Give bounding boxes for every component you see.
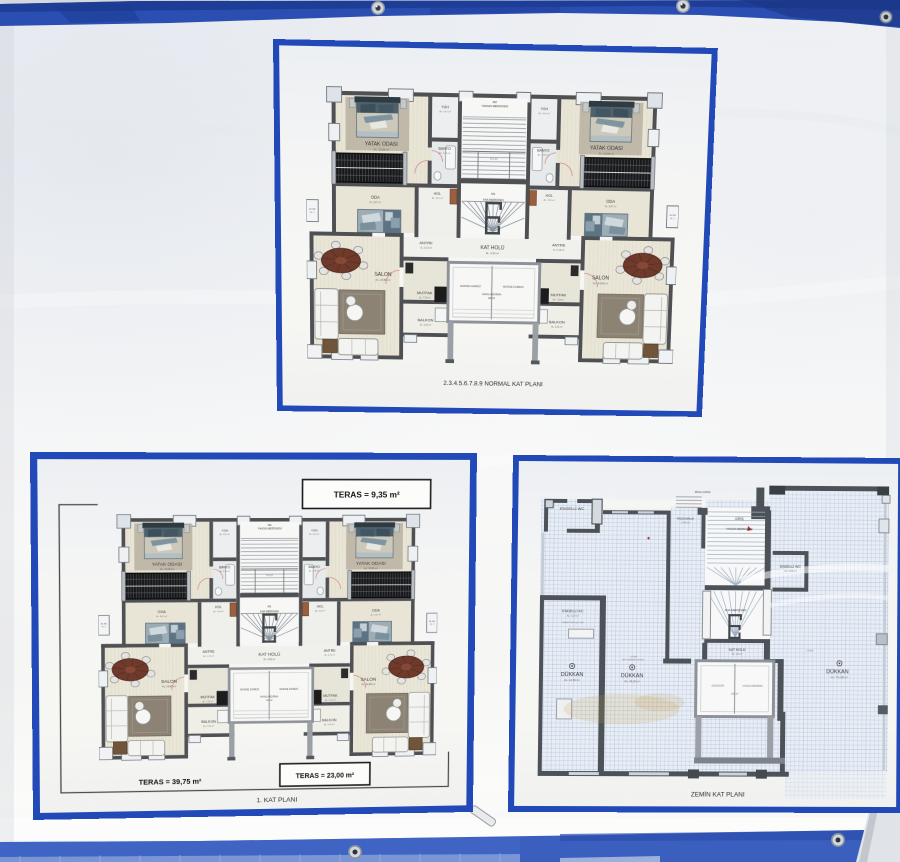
- svg-text:AL: 16 m²: AL: 16 m²: [732, 653, 743, 656]
- svg-text:AL: 4,40 m²: AL: 4,40 m²: [784, 570, 797, 573]
- svg-text:GİRİŞ: GİRİŞ: [735, 516, 744, 521]
- svg-text:AL: 3,14 m²: AL: 3,14 m²: [567, 615, 580, 618]
- svg-text:BETONARME PERDE: BETONARME PERDE: [622, 658, 645, 661]
- svg-text:AL: 43,22 m²: AL: 43,22 m²: [624, 679, 640, 683]
- svg-text:AL: 70,138 m²: AL: 70,138 m²: [831, 675, 848, 679]
- svg-text:BİSA GİRİŞ: BİSA GİRİŞ: [695, 489, 711, 494]
- svg-text:DÜKKAN: DÜKKAN: [826, 668, 849, 675]
- svg-text:MİMARİ TADİLAT VAR: MİMARİ TADİLAT VAR: [562, 621, 585, 624]
- svg-text:ZEMİN KAT PLANI: ZEMİN KAT PLANI: [691, 789, 745, 798]
- svg-text:282 M³: 282 M³: [731, 693, 739, 696]
- svg-text:ANA MERDİVEN: ANA MERDİVEN: [725, 607, 747, 612]
- svg-text:ENGELLİ WC: ENGELLİ WC: [780, 564, 801, 569]
- svg-text:YIĞMA: YIĞMA: [630, 655, 638, 658]
- svg-text:1. KAT PLANI: 1. KAT PLANI: [256, 797, 297, 804]
- svg-text:DÜKKAN: DÜKKAN: [561, 671, 584, 678]
- svg-text:YIĞMA: YIĞMA: [806, 649, 814, 652]
- svg-text:TERAS = 23,00 m²: TERAS = 23,00 m²: [296, 771, 355, 780]
- svg-text:KAT HOLÜ: KAT HOLÜ: [729, 648, 746, 652]
- svg-text:ENGELLİ KC: ENGELLİ KC: [562, 608, 584, 613]
- svg-text:TERAS = 9,35 m²: TERAS = 9,35 m²: [334, 490, 400, 500]
- svg-text:DÜKKAN: DÜKKAN: [621, 672, 644, 679]
- svg-text:ENGELLİ WC: ENGELLİ WC: [560, 506, 585, 511]
- svg-text:ASANSÖR: ASANSÖR: [711, 684, 724, 688]
- svg-text:HAVALANDIRMA: HAVALANDIRMA: [743, 684, 763, 688]
- svg-text:TERAS = 39,75 m²: TERAS = 39,75 m²: [139, 777, 202, 787]
- svg-text:RÜZGARLIK: RÜZGARLIK: [677, 517, 694, 521]
- svg-text:YANGIN MERDİVENİ: YANGIN MERDİVENİ: [726, 526, 753, 531]
- svg-text:2,40 m²: 2,40 m²: [681, 521, 690, 525]
- svg-text:AL: 21,80 m²: AL: 21,80 m²: [564, 678, 580, 682]
